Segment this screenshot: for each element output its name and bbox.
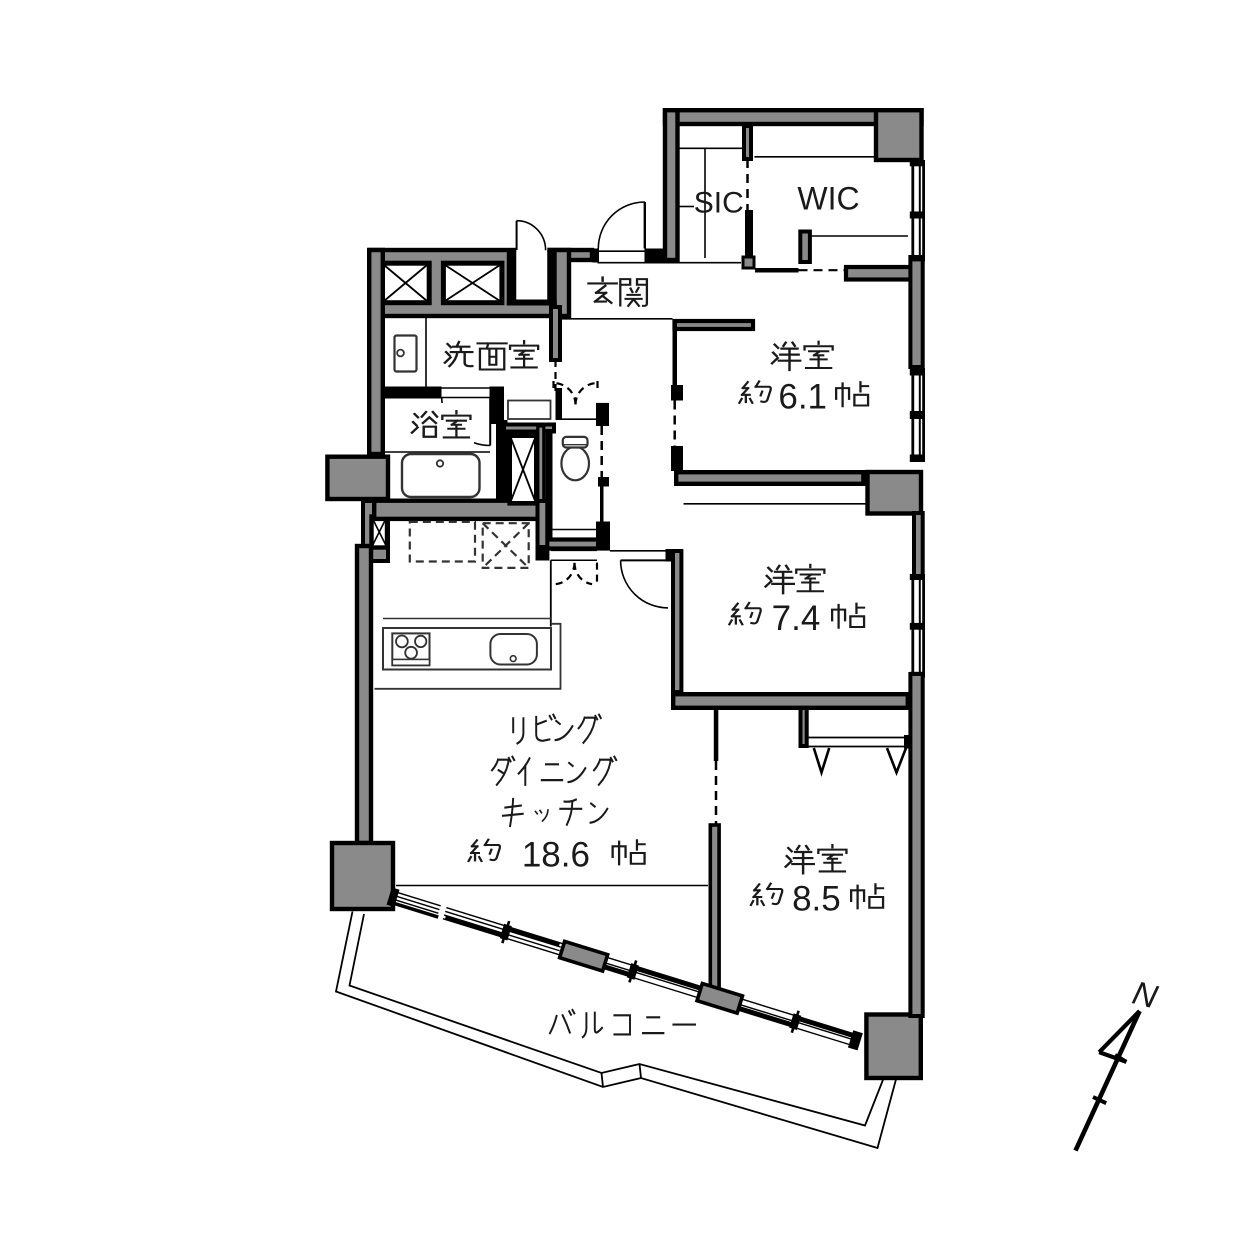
svg-text:SIC: SIC — [694, 187, 744, 220]
svg-text:6.1: 6.1 — [778, 377, 827, 416]
svg-text:8.5: 8.5 — [792, 880, 841, 919]
svg-text:7.4: 7.4 — [772, 599, 821, 638]
svg-text:WIC: WIC — [797, 181, 859, 217]
svg-text:18.6: 18.6 — [522, 836, 590, 875]
